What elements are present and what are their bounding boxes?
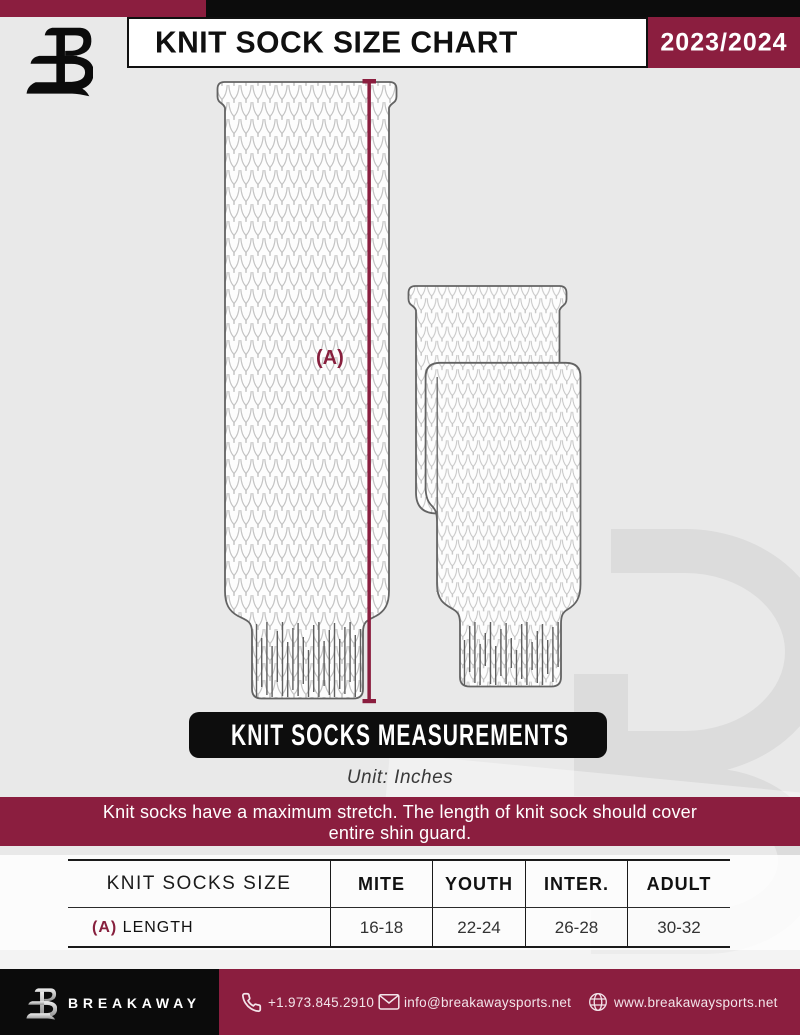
svg-text:(A): (A) [316,347,344,369]
